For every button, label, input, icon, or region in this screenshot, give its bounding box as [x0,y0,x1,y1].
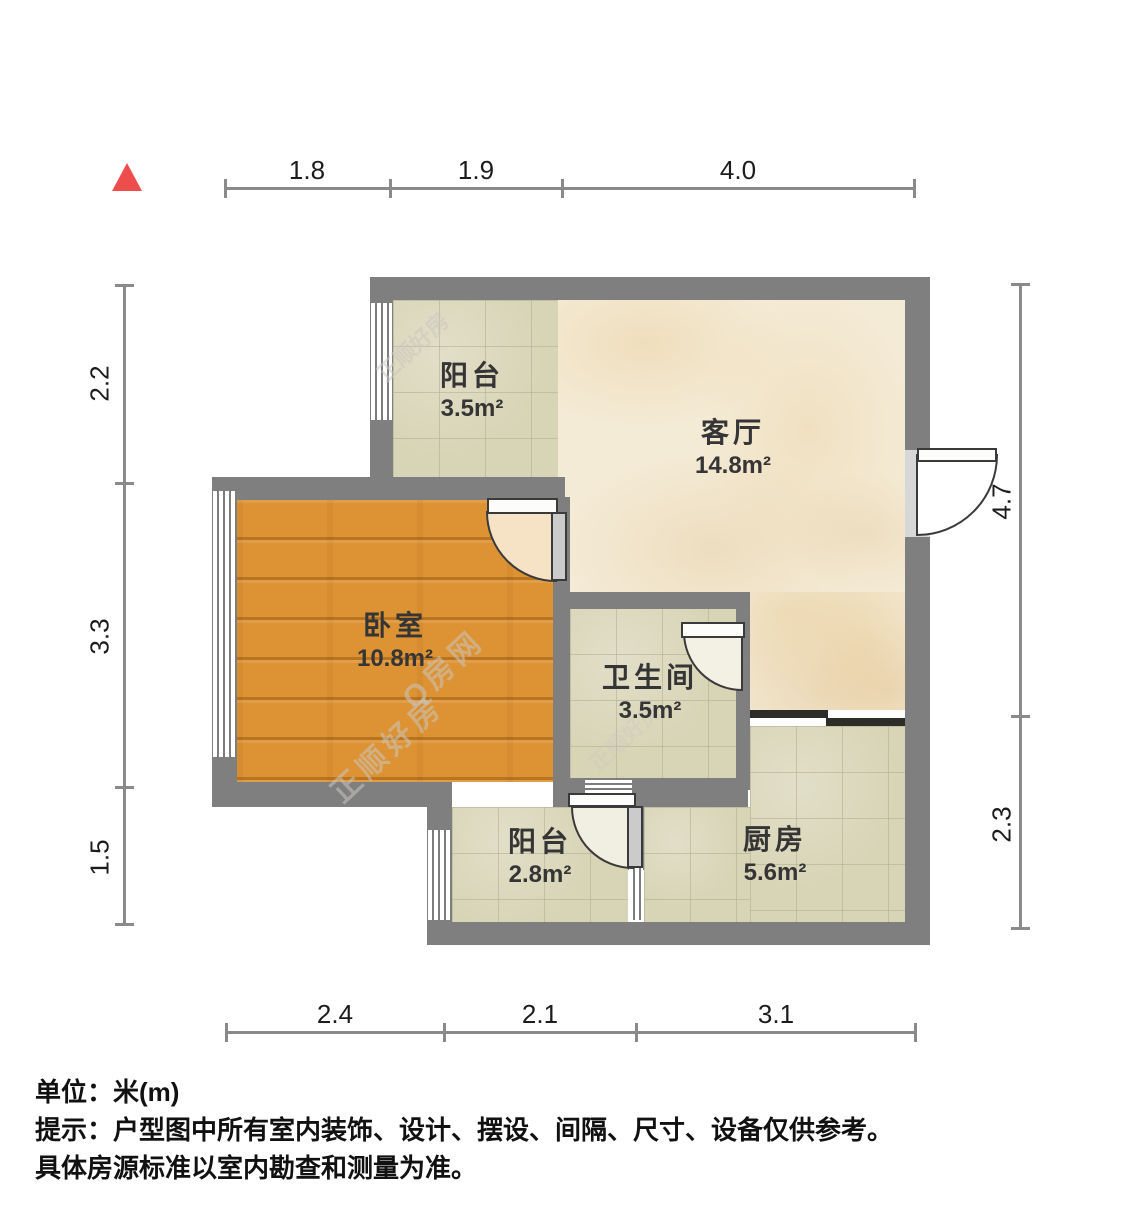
floor-plan-canvas: 正顺好房 正顺好房 Q房网 正顺好房 阳台 3.5m² 客厅 14.8m² 卧室… [0,0,1144,1222]
dim-line-top [225,187,916,190]
dim-label-bottom-1: 2.1 [495,999,585,1030]
door-leaf-bedroom [487,498,558,514]
dim-label-left-0: 2.2 [85,339,116,429]
window-kitchen-divider [629,868,643,920]
room-area: 5.6m² [690,857,860,888]
dim-tick [1011,283,1030,286]
dim-tick [115,786,134,789]
door-leaf-bathroom [681,622,745,638]
room-name: 客厅 [648,415,818,450]
sliding-door-panel-right-bottom [826,718,905,726]
footer-tip-text-2: 具体房源标准以室内勘查和测量为准。 [35,1148,477,1185]
window-balcony-bottom [428,830,451,920]
dim-label-left-1: 3.3 [85,592,116,682]
dim-tick [389,179,392,198]
dim-tick [635,1023,638,1042]
footer-tip-text: 提示：户型图中所有室内装饰、设计、摆设、间隔、尺寸、设备仅供参考。 [35,1110,893,1147]
dim-line-left [123,285,126,925]
room-area: 14.8m² [648,450,818,481]
dim-label-bottom-0: 2.4 [290,999,380,1030]
sliding-door-panel-left-bottom [750,718,826,726]
room-name: 阳台 [455,824,625,859]
room-area: 10.8m² [310,643,480,674]
room-area: 2.8m² [455,859,625,890]
north-marker-icon [112,163,142,191]
dim-label-top-2: 4.0 [693,155,783,186]
footer-unit-text: 单位：米(m) [35,1072,179,1109]
room-area: 3.5m² [387,393,557,424]
room-name: 卫生间 [565,660,735,695]
floor-living-room-lower [748,592,905,710]
wall-right [905,277,930,945]
room-name: 卧室 [310,608,480,643]
dim-tick [913,179,916,198]
wall-bedroom-top [212,477,565,500]
dim-line-right [1019,284,1022,929]
wall-bottom [427,922,930,945]
dim-label-right-0: 4.7 [987,457,1018,547]
wall-top [370,277,930,300]
room-label-living: 客厅 14.8m² [648,415,818,481]
wall-bedroom-bottom [212,782,452,807]
room-label-bathroom: 卫生间 3.5m² [565,660,735,726]
door-panel-balcony-bottom [627,806,643,868]
sliding-door-panel-right-top [832,710,905,718]
dim-tick [561,179,564,198]
room-label-bedroom: 卧室 10.8m² [310,608,480,674]
dim-tick [225,1023,228,1042]
entry-door-opening [905,450,930,537]
room-name: 阳台 [387,358,557,393]
wall-bathroom-top [558,592,748,609]
room-label-kitchen: 厨房 5.6m² [690,822,860,888]
dim-label-left-2: 1.5 [85,813,116,903]
door-leaf-balcony-bottom [568,793,636,807]
window-bedroom [213,491,236,757]
dim-line-bottom [226,1031,916,1034]
dim-label-right-1: 2.3 [987,780,1018,870]
dim-tick [224,179,227,198]
sliding-door-panel-left-top [750,710,828,718]
dim-label-top-0: 1.8 [262,155,352,186]
room-label-balcony-top: 阳台 3.5m² [387,358,557,424]
room-area: 3.5m² [565,695,735,726]
dim-tick [1011,927,1030,930]
dim-tick [914,1023,917,1042]
room-name: 厨房 [690,822,860,857]
dim-tick [115,482,134,485]
door-panel-bedroom [551,512,567,581]
dim-tick [1011,715,1030,718]
dim-label-bottom-2: 3.1 [731,999,821,1030]
door-leaf-entry [917,448,997,462]
dim-tick [443,1023,446,1042]
room-label-balcony-bottom: 阳台 2.8m² [455,824,625,890]
dim-label-top-1: 1.9 [431,155,521,186]
dim-tick [115,923,134,926]
dim-tick [115,284,134,287]
